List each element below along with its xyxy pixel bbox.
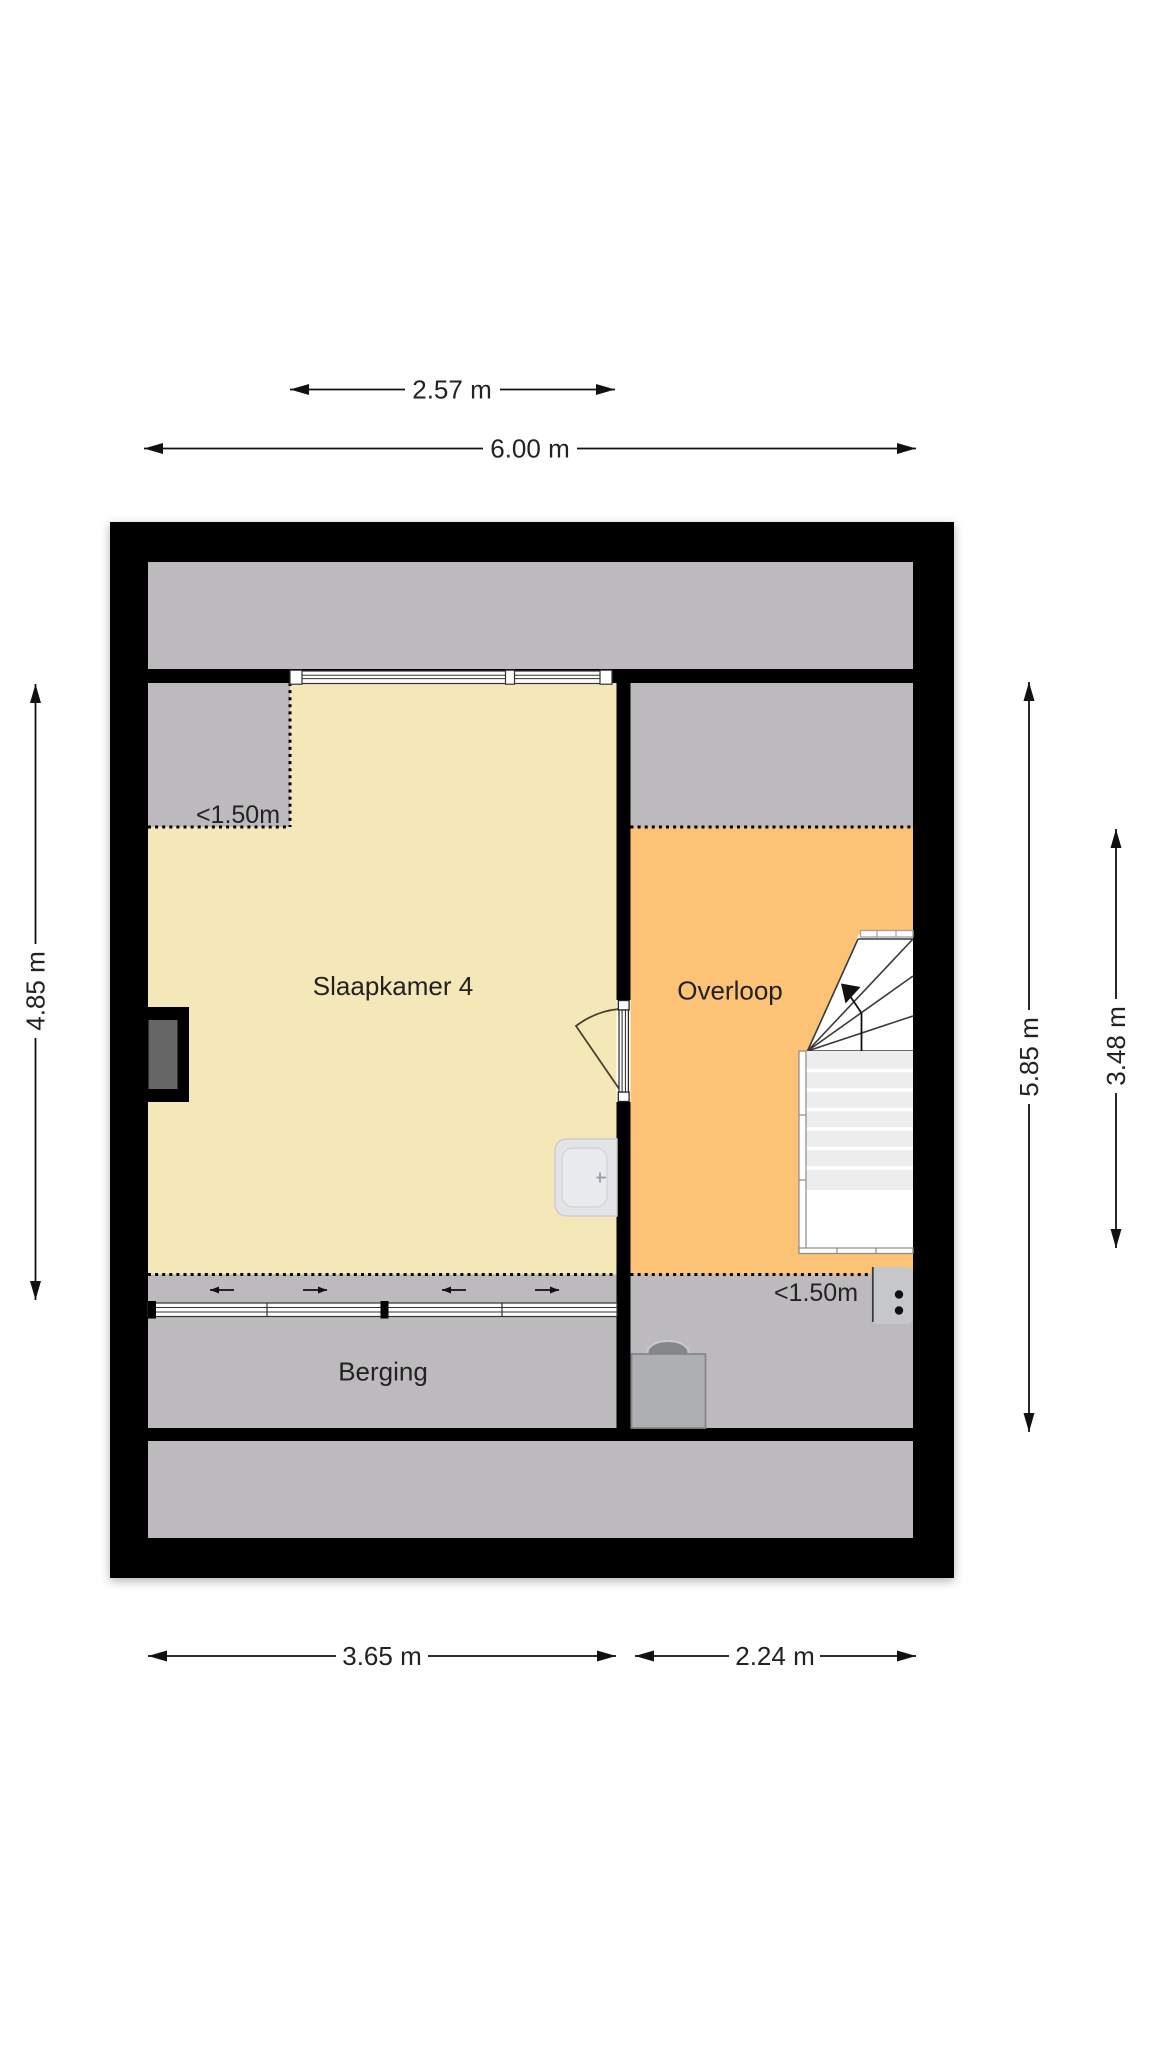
svg-text:2.24 m: 2.24 m: [735, 1641, 815, 1671]
svg-text:3.65 m: 3.65 m: [342, 1641, 422, 1671]
svg-text:Berging: Berging: [338, 1357, 428, 1387]
svg-text:2.57 m: 2.57 m: [412, 375, 492, 405]
svg-text:Slaapkamer 4: Slaapkamer 4: [313, 971, 473, 1001]
svg-text:Overloop: Overloop: [677, 976, 783, 1006]
svg-text:4.85 m: 4.85 m: [21, 951, 51, 1031]
svg-text:<1.50m: <1.50m: [774, 1279, 858, 1307]
svg-text:6.00 m: 6.00 m: [490, 434, 570, 464]
svg-text:<1.50m: <1.50m: [196, 801, 280, 829]
svg-text:5.85 m: 5.85 m: [1014, 1017, 1044, 1097]
svg-text:3.48 m: 3.48 m: [1101, 1006, 1131, 1086]
